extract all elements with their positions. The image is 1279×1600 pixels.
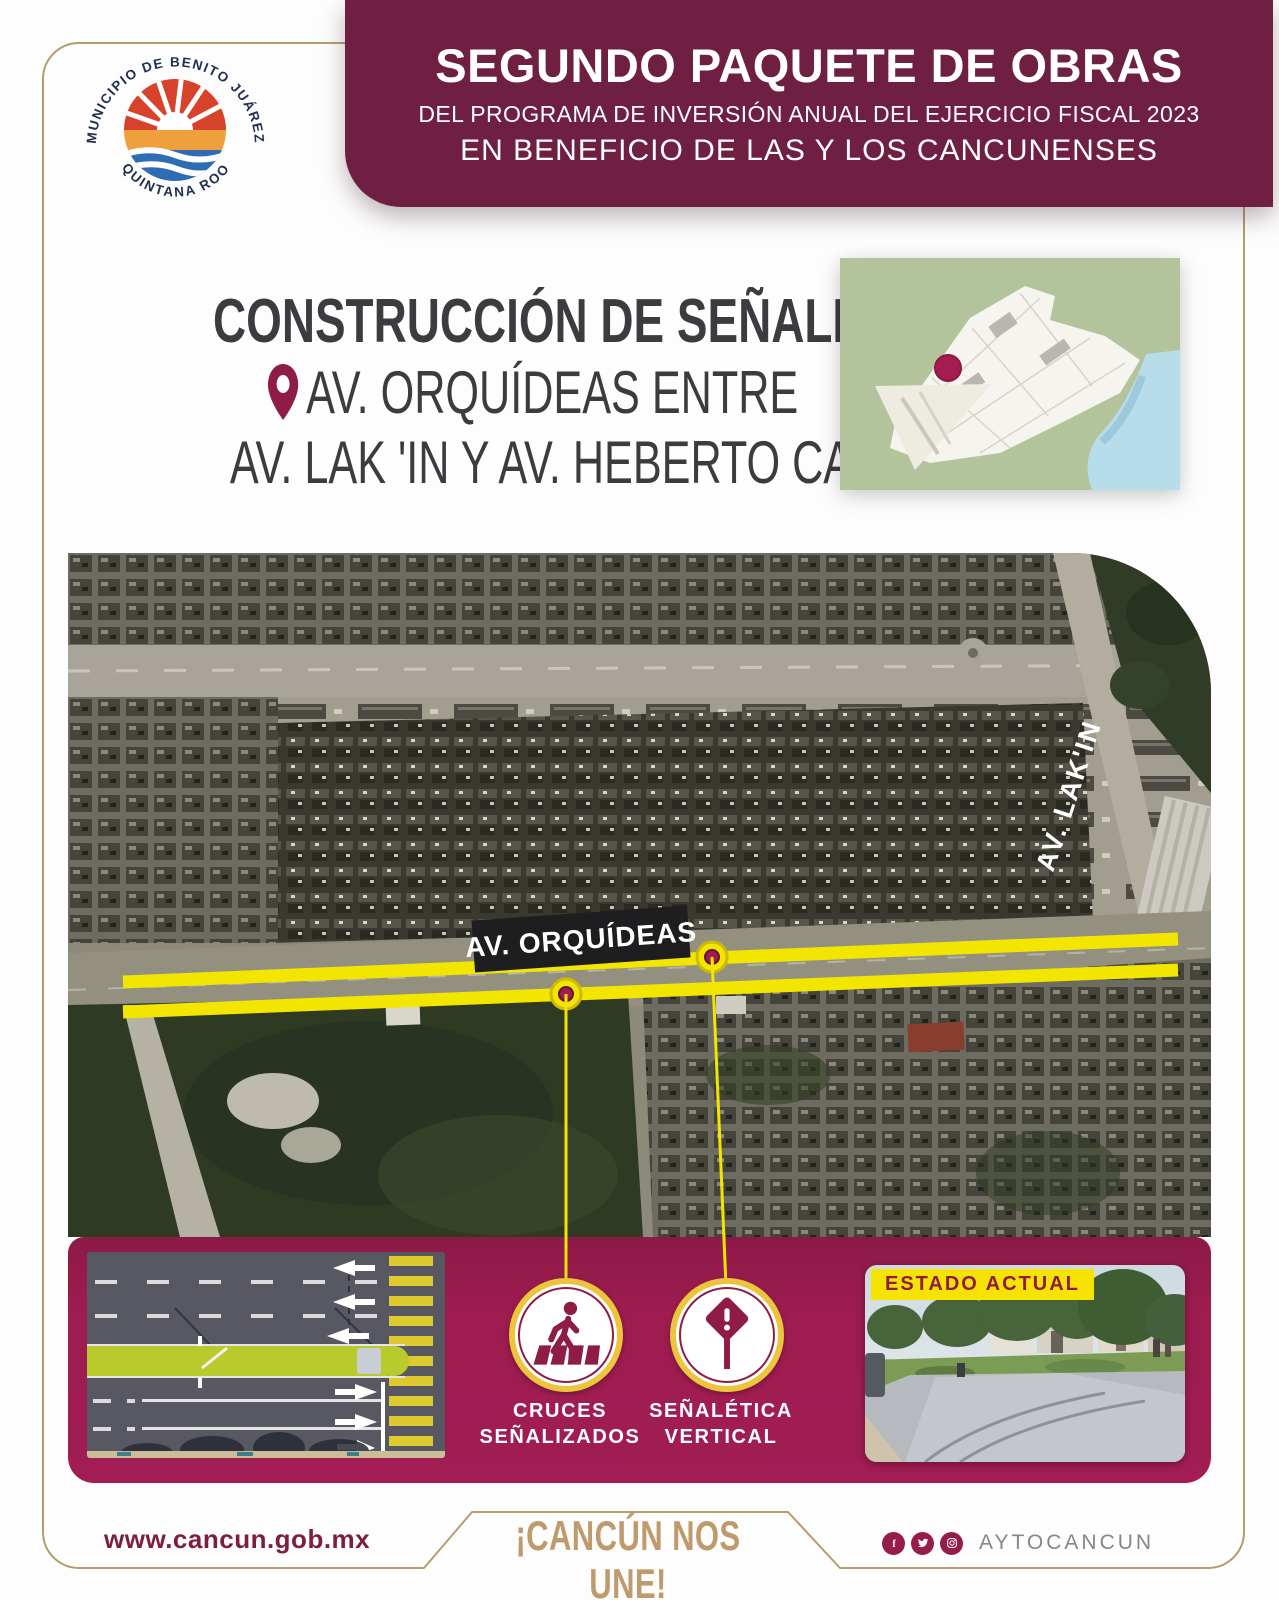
- project-title-block: CONSTRUCCIÓN DE SEÑALÉTICA AV. ORQUÍDEAS…: [80, 286, 870, 498]
- header-banner: SEGUNDO PAQUETE DE OBRAS DEL PROGRAMA DE…: [345, 0, 1273, 207]
- project-location-line1: AV. ORQUÍDEAS ENTRE: [306, 359, 798, 426]
- header-title: SEGUNDO PAQUETE DE OBRAS: [435, 40, 1183, 92]
- map-marker-sign: [697, 942, 727, 972]
- header-tagline: EN BENEFICIO DE LAS Y LOS CANCUNENSES: [460, 134, 1158, 168]
- feature-sign-label: SEÑALÉTICA VERTICAL: [601, 1398, 841, 1450]
- current-state-photo: ESTADO ACTUAL: [865, 1265, 1185, 1462]
- social-handle: AYTOCANCUN: [979, 1531, 1154, 1555]
- header-subtitle: DEL PROGRAMA DE INVERSIÓN ANUAL DEL EJER…: [418, 101, 1199, 127]
- current-state-tag: ESTADO ACTUAL: [871, 1269, 1094, 1300]
- city-slogan: ¡CANCÚN NOS UNE!: [438, 1512, 818, 1600]
- feature-crossing-badge: [509, 1278, 623, 1392]
- municipal-seal-icon: MUNICIPIO DE BENITO JUÁREZ QUINTANA ROO: [78, 46, 273, 221]
- vertical-sign-icon: [690, 1296, 764, 1374]
- locator-dot: [935, 355, 961, 381]
- twitter-icon: [911, 1532, 934, 1555]
- location-pin-icon: [268, 363, 300, 421]
- pedestrian-crossing-icon: [529, 1296, 603, 1374]
- map-marker-crossing: [551, 979, 581, 1009]
- facebook-icon: f: [882, 1532, 905, 1555]
- poster-page: MUNICIPIO DE BENITO JUÁREZ QUINTANA ROO: [0, 0, 1279, 1600]
- municipal-logo: MUNICIPIO DE BENITO JUÁREZ QUINTANA ROO: [78, 46, 273, 221]
- website-url: www.cancun.gob.mx: [104, 1524, 370, 1555]
- social-row: f AYTOCANCUN: [882, 1531, 1154, 1555]
- feature-sign-badge: [670, 1278, 784, 1392]
- instagram-icon: [940, 1532, 963, 1555]
- satellite-map: AV. ORQUÍDEAS AV. LAK'IN: [68, 553, 1211, 1237]
- city-locator-map: [840, 258, 1180, 490]
- svg-text:f: f: [892, 1539, 896, 1550]
- road-diagram: [87, 1252, 445, 1458]
